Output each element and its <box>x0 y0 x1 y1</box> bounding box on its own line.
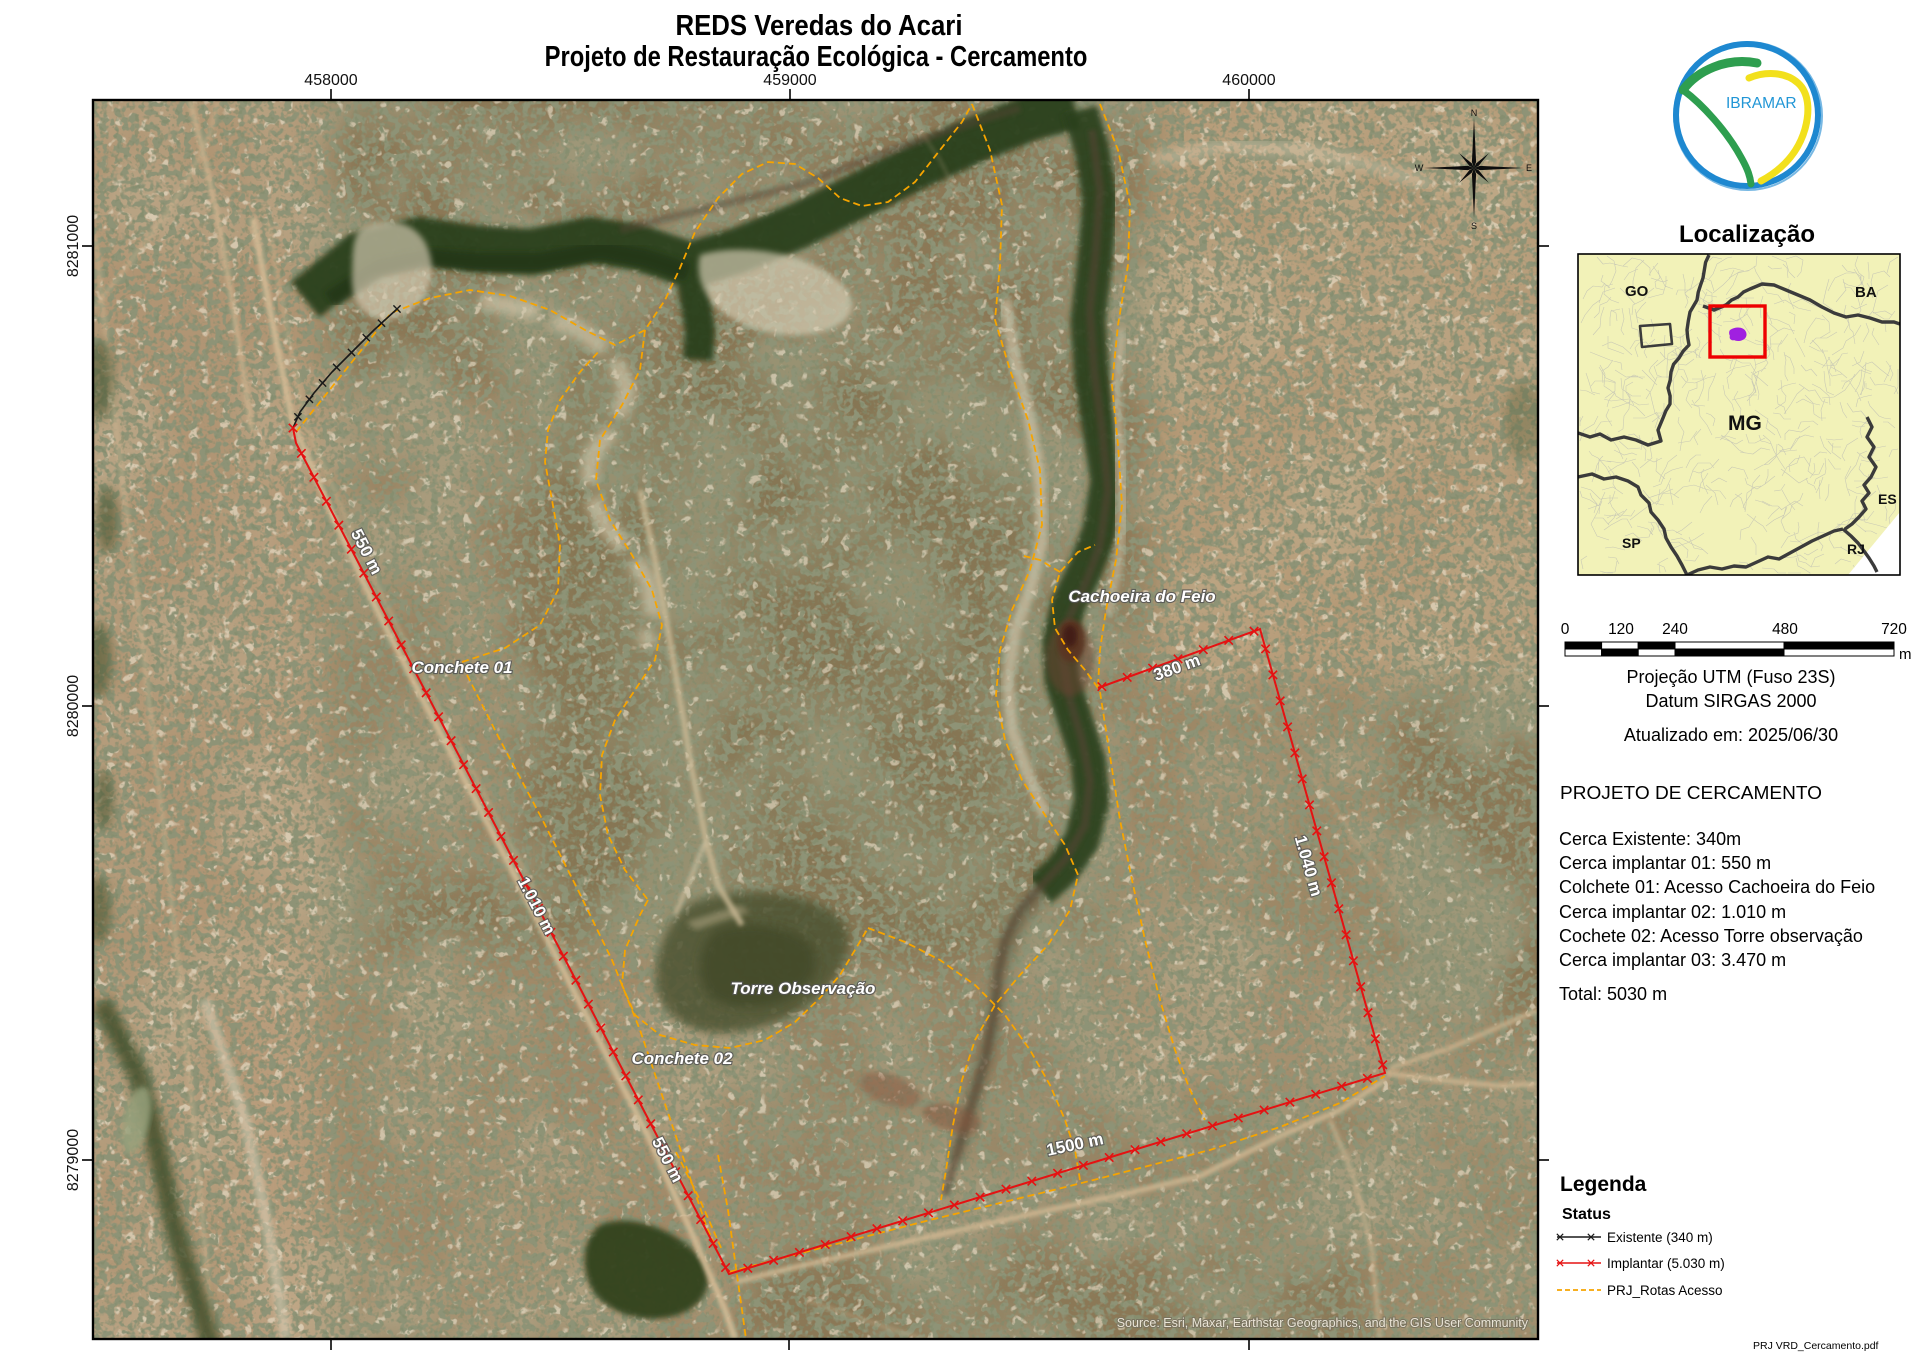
svg-text:Datum SIRGAS 2000: Datum SIRGAS 2000 <box>1645 691 1816 711</box>
svg-text:GO: GO <box>1625 283 1649 300</box>
svg-text:720: 720 <box>1881 621 1907 638</box>
svg-text:PRJ_Rotas Acesso: PRJ_Rotas Acesso <box>1607 1283 1723 1298</box>
svg-text:480: 480 <box>1772 621 1798 638</box>
svg-text:Source: Esri, Maxar, Earthstar: Source: Esri, Maxar, Earthstar Geographi… <box>1117 1316 1529 1330</box>
svg-text:Cachoeira do Feio: Cachoeira do Feio <box>1068 587 1215 606</box>
svg-text:S: S <box>1471 221 1477 231</box>
svg-text:8281000: 8281000 <box>65 215 82 277</box>
svg-text:459000: 459000 <box>763 72 816 89</box>
svg-text:Cochete 02: Acesso Torre obser: Cochete 02: Acesso Torre observação <box>1559 926 1863 946</box>
svg-text:MG: MG <box>1728 412 1762 435</box>
svg-text:PROJETO DE CERCAMENTO: PROJETO DE CERCAMENTO <box>1560 783 1822 803</box>
svg-text:Cerca Existente: 340m: Cerca Existente: 340m <box>1559 829 1741 849</box>
svg-text:N: N <box>1471 108 1478 118</box>
svg-text:Cerca implantar 01: 550 m: Cerca implantar 01: 550 m <box>1559 853 1771 873</box>
svg-text:Existente (340 m): Existente (340 m) <box>1607 1230 1713 1245</box>
svg-text:0: 0 <box>1561 621 1570 638</box>
svg-text:SP: SP <box>1622 535 1641 551</box>
svg-text:Implantar (5.030 m): Implantar (5.030 m) <box>1607 1256 1725 1271</box>
svg-text:W: W <box>1415 163 1424 173</box>
svg-text:Projeto de Restauração Ecológi: Projeto de Restauração Ecológica - Cerca… <box>545 40 1088 73</box>
svg-text:Localização: Localização <box>1679 221 1815 248</box>
svg-text:240: 240 <box>1662 621 1688 638</box>
svg-text:Conchete 01: Conchete 01 <box>411 658 512 677</box>
svg-text:8279000: 8279000 <box>65 1129 82 1191</box>
svg-text:Conchete 02: Conchete 02 <box>631 1049 733 1068</box>
svg-text:Cerca implantar 03: 3.470 m: Cerca implantar 03: 3.470 m <box>1559 950 1786 970</box>
svg-text:RJ: RJ <box>1847 541 1865 557</box>
svg-text:BA: BA <box>1855 284 1877 301</box>
svg-text:Torre Observação: Torre Observação <box>731 979 876 998</box>
svg-text:ES: ES <box>1878 491 1897 507</box>
svg-text:m: m <box>1899 646 1912 663</box>
svg-text:460000: 460000 <box>1222 72 1275 89</box>
svg-text:E: E <box>1526 163 1532 173</box>
svg-text:458000: 458000 <box>304 72 357 89</box>
svg-text:IBRAMAR: IBRAMAR <box>1726 95 1797 112</box>
svg-text:Colchete 01: Acesso Cachoeira: Colchete 01: Acesso Cachoeira do Feio <box>1559 877 1875 897</box>
svg-text:Atualizado em: 2025/06/30: Atualizado em: 2025/06/30 <box>1624 725 1838 745</box>
svg-text:Projeção UTM (Fuso 23S): Projeção UTM (Fuso 23S) <box>1626 667 1835 687</box>
svg-text:8280000: 8280000 <box>65 675 82 737</box>
svg-text:REDS Veredas do Acari: REDS Veredas do Acari <box>676 10 963 42</box>
svg-text:Total: 5030 m: Total: 5030 m <box>1559 984 1667 1004</box>
svg-text:PRJ VRD_Cercamento.pdf: PRJ VRD_Cercamento.pdf <box>1753 1340 1879 1352</box>
svg-text:Legenda: Legenda <box>1560 1173 1647 1196</box>
svg-text:Cerca implantar 02: 1.010 m: Cerca implantar 02: 1.010 m <box>1559 902 1786 922</box>
svg-text:Status: Status <box>1562 1206 1611 1223</box>
svg-text:120: 120 <box>1608 621 1634 638</box>
